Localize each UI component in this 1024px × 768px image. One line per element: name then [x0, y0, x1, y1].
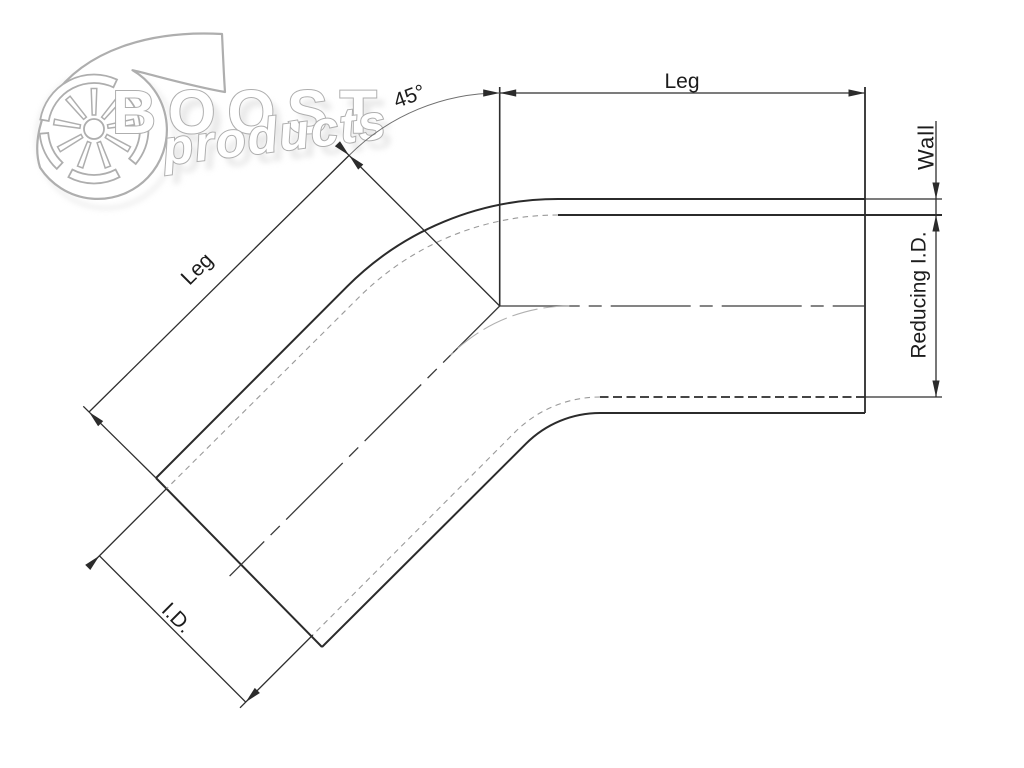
svg-text:Leg: Leg [664, 70, 699, 93]
svg-text:Reducing I.D.: Reducing I.D. [908, 231, 931, 358]
svg-text:Wall: Wall [914, 124, 939, 170]
